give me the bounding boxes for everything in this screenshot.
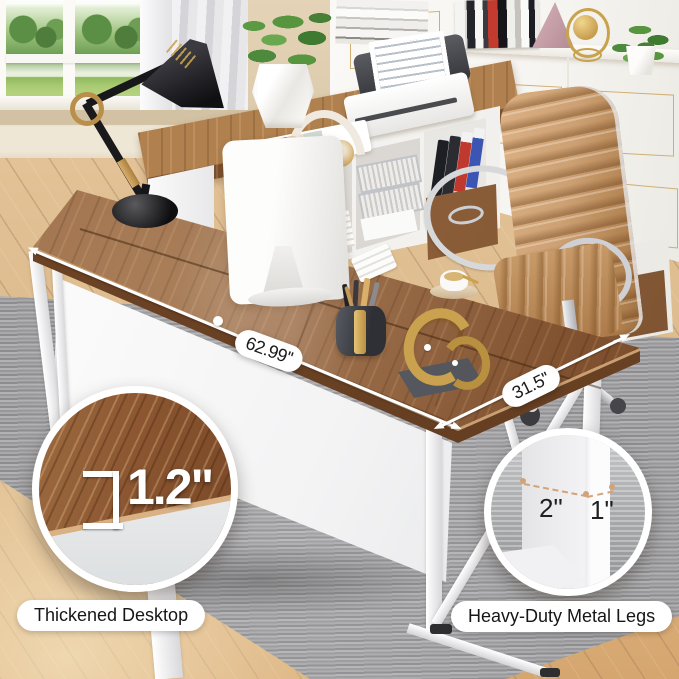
leg-foot-pad xyxy=(430,624,452,634)
window-pane-left xyxy=(6,0,63,98)
measure-bracket xyxy=(113,471,119,529)
thickness-measurement: 1.2" xyxy=(127,461,212,514)
pen-holder-gold-band xyxy=(354,310,366,354)
dimension-dot xyxy=(213,316,223,326)
desk-lamp-hinge-ring xyxy=(70,92,104,126)
zoom-callout-metal-leg: 2" 1" xyxy=(484,428,652,596)
chair-caster xyxy=(610,398,626,414)
sculpture-pearl xyxy=(452,360,458,366)
measure-bracket xyxy=(83,471,117,477)
desk-lamp-base xyxy=(112,194,178,228)
leg-width-measurement: 2" xyxy=(539,495,563,521)
measure-dot xyxy=(609,484,615,490)
measure-bracket xyxy=(83,523,123,529)
books-row xyxy=(455,0,540,49)
feature-badge-thickened-desktop: Thickened Desktop xyxy=(17,600,205,631)
sculpture-pearl xyxy=(424,344,431,351)
measure-dot xyxy=(583,491,589,497)
zoom-callout-desktop-thickness: 1.2" xyxy=(32,386,238,592)
product-image-l-shaped-desk: 62.99'' 31.5'' 1.2" 2" 1" Thickened Desk… xyxy=(0,0,679,679)
feature-badge-heavy-duty-legs: Heavy-Duty Metal Legs xyxy=(451,601,672,632)
globe-base xyxy=(573,48,602,62)
window-rail xyxy=(6,54,148,63)
globe-sphere xyxy=(573,15,598,40)
measure-dot xyxy=(520,478,526,484)
leg-foot-pad xyxy=(540,668,560,677)
leg-depth-measurement: 1" xyxy=(590,497,614,523)
